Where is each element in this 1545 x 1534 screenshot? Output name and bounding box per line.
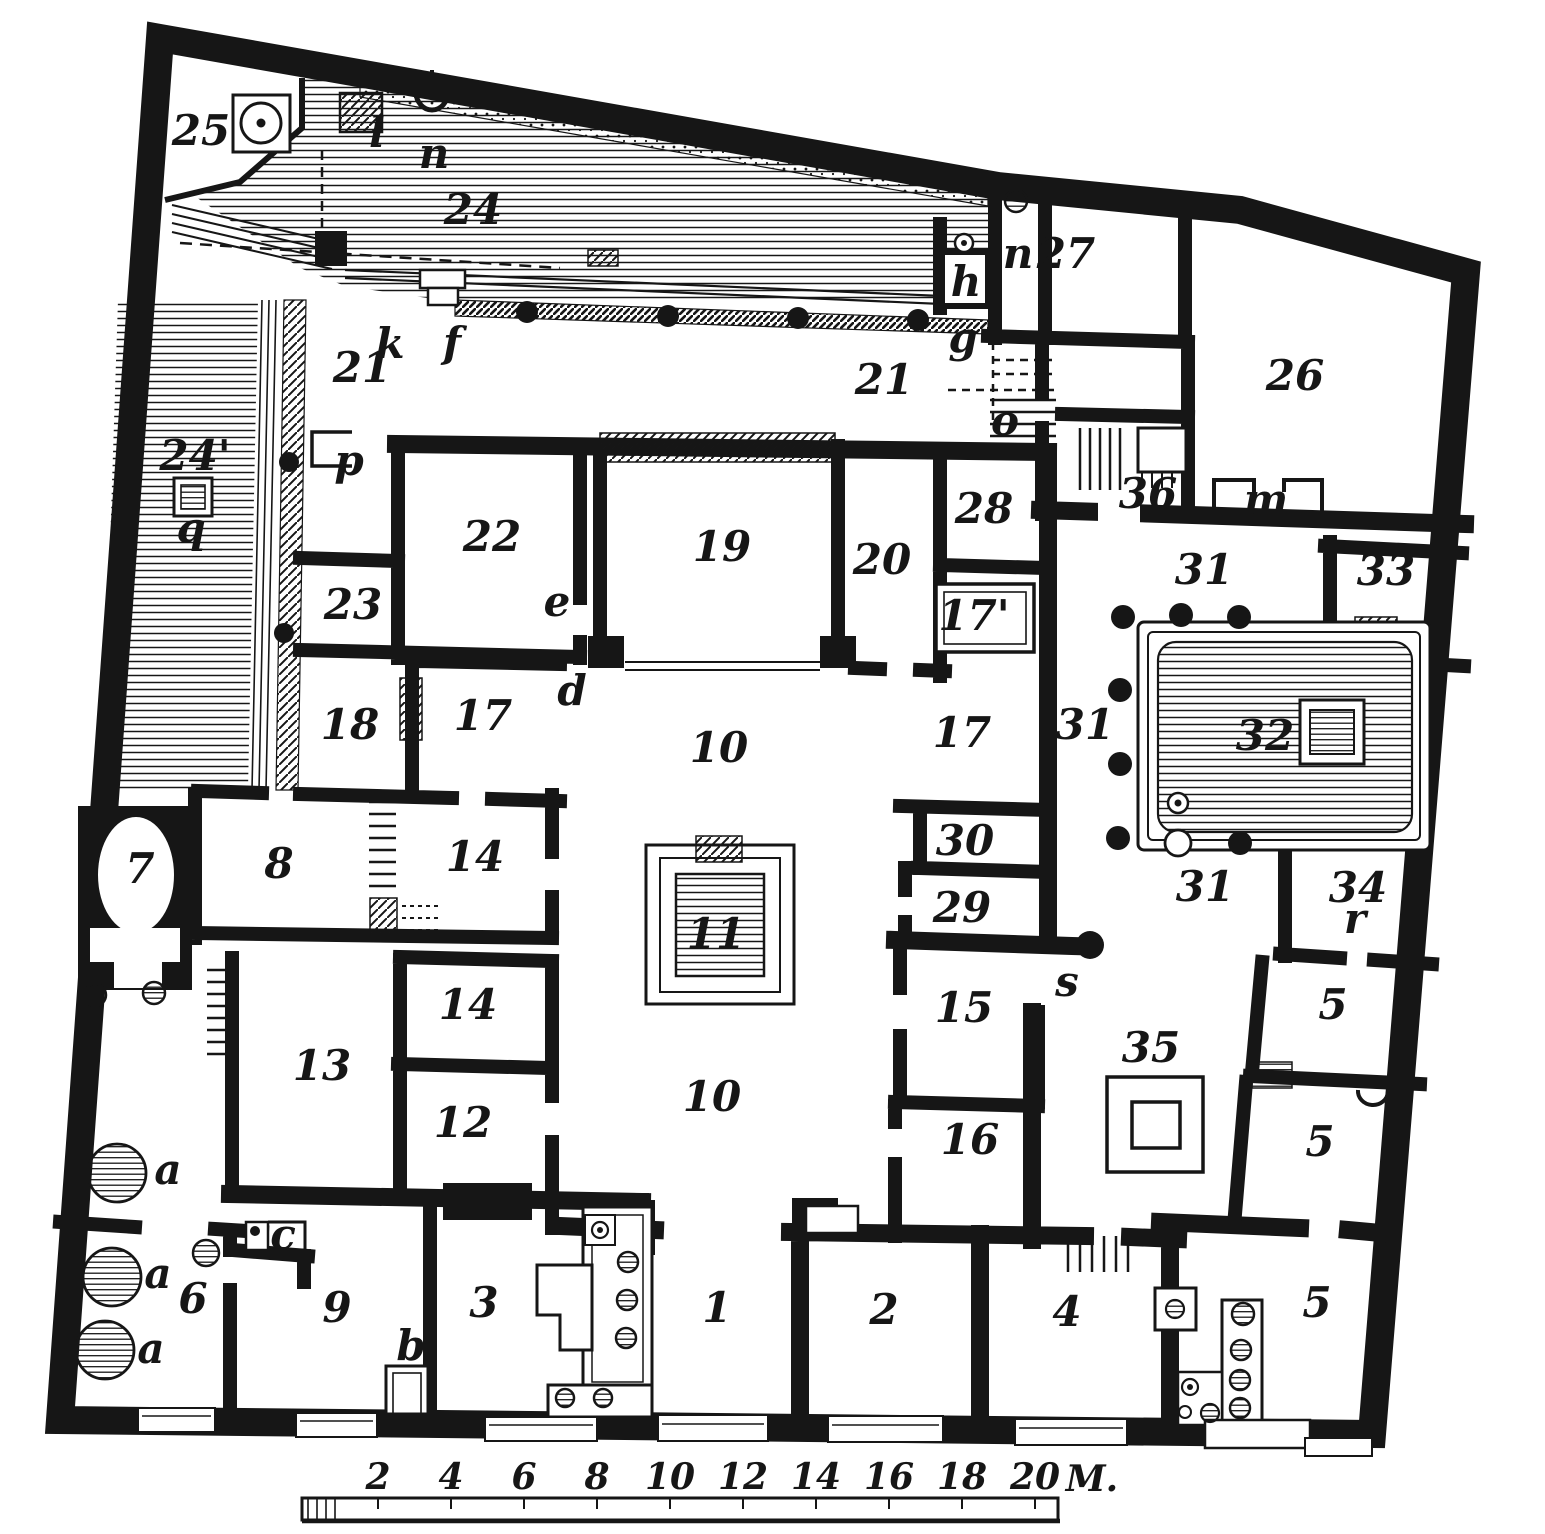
room-label-25: 25 — [171, 106, 230, 155]
room-label-10: 10 — [683, 1072, 741, 1121]
room-label-35: 35 — [1122, 1023, 1180, 1072]
room-label-15: 15 — [935, 983, 993, 1032]
scale-tick-16: 16 — [864, 1456, 914, 1498]
room-label-14: 14 — [439, 980, 497, 1029]
room-label-a: a — [137, 1324, 164, 1373]
room-label-5: 5 — [1302, 1278, 1331, 1327]
room-label-r: r — [1344, 894, 1369, 943]
room-label-l: l — [369, 108, 385, 157]
scale-tick-12: 12 — [718, 1456, 768, 1498]
scale-tick-6: 6 — [511, 1456, 536, 1498]
half-column — [279, 452, 299, 472]
room-label-32: 32 — [1236, 711, 1294, 760]
room-label-6: 6 — [178, 1274, 207, 1323]
room-label-21: 21 — [332, 343, 391, 392]
room-label-e: e — [544, 577, 571, 626]
room-label-31: 31 — [1175, 545, 1233, 594]
mill-feature — [233, 95, 290, 152]
scale-tick-20: 20 — [1009, 1456, 1060, 1498]
room-label-b: b — [396, 1321, 425, 1370]
small-hatch — [588, 250, 618, 266]
room-label-8: 8 — [263, 839, 293, 888]
floor-plan-page: 25ln2424'qkf21p21ghn27o2636m2219202823ed… — [0, 0, 1545, 1534]
room-label-20: 20 — [852, 535, 911, 584]
room-label-13: 13 — [293, 1041, 351, 1090]
room-label-g: g — [948, 313, 977, 362]
room-label-24: 24 — [443, 185, 502, 234]
scale-tick-14: 14 — [791, 1456, 841, 1498]
room-label-14: 14 — [446, 832, 504, 881]
room-label-5: 5 — [1318, 980, 1347, 1029]
room-label-7: 7 — [125, 844, 154, 893]
room-label-17: 17 — [454, 691, 512, 740]
fixture-square-4 — [1155, 1288, 1196, 1330]
room-label-28: 28 — [954, 484, 1013, 533]
room-label-10: 10 — [690, 723, 748, 772]
room-label-27: 27 — [1036, 229, 1095, 278]
scale-tick-8: 8 — [583, 1456, 609, 1498]
room-label-3: 3 — [469, 1278, 498, 1327]
scale-tick-18: 18 — [937, 1456, 987, 1498]
scale-tick-10: 10 — [645, 1456, 695, 1498]
scale-unit-label: M. — [1064, 1458, 1118, 1500]
floor-plan-figure: 25ln2424'qkf21p21ghn27o2636m2219202823ed… — [0, 0, 1545, 1534]
room-label-m: m — [1244, 475, 1288, 524]
tablinum-anta — [588, 636, 624, 668]
room-label-19: 19 — [693, 522, 751, 571]
room-label-12: 12 — [434, 1098, 492, 1147]
feature-f-steps — [420, 270, 465, 305]
room-label-q: q — [176, 503, 205, 552]
wall-jog — [443, 1183, 532, 1220]
room-label-h: h — [951, 257, 982, 306]
room-label-36: 36 — [1119, 469, 1177, 518]
recess-2 — [806, 1206, 858, 1233]
cistern-n — [1005, 190, 1027, 212]
room-label-9: 9 — [322, 1283, 351, 1332]
room-label-17: 17 — [933, 708, 991, 757]
room-label-s: s — [1054, 957, 1079, 1006]
room-label-30: 30 — [936, 816, 994, 865]
room-label-18: 18 — [321, 700, 379, 749]
feature-b — [386, 1366, 428, 1414]
room-label-1: 1 — [702, 1283, 731, 1332]
room-label-4: 4 — [1052, 1287, 1081, 1336]
tablinum-anta — [820, 636, 856, 668]
half-column — [274, 623, 294, 643]
room-label-31: 31 — [1176, 862, 1234, 911]
pier — [315, 231, 347, 266]
room-label-a: a — [144, 1249, 171, 1298]
scale-tick-2: 2 — [364, 1456, 390, 1498]
room-label-2: 2 — [868, 1285, 898, 1334]
room-label-o: o — [991, 396, 1019, 445]
room-label-p: p — [334, 436, 363, 485]
room-label-11: 11 — [687, 909, 745, 958]
oven-7 — [78, 806, 192, 1006]
scale-tick-4: 4 — [438, 1456, 463, 1498]
room-label-d: d — [557, 666, 586, 715]
room-label-21: 21 — [854, 355, 913, 404]
room-label-17': 17' — [938, 591, 1009, 640]
room-label-a: a — [154, 1145, 181, 1194]
room-label-31: 31 — [1056, 700, 1114, 749]
room-label-22: 22 — [462, 512, 521, 561]
room-label-26: 26 — [1265, 351, 1324, 400]
room-label-c: c — [270, 1210, 296, 1259]
room-label-n: n — [419, 129, 450, 178]
room-label-33: 33 — [1357, 546, 1415, 595]
room-label-n: n — [1003, 229, 1034, 278]
room-label-29: 29 — [932, 883, 991, 932]
room-label-24': 24' — [158, 431, 230, 480]
feature-35 — [1107, 1077, 1203, 1172]
room-label-5: 5 — [1305, 1117, 1334, 1166]
room-label-16: 16 — [941, 1115, 999, 1164]
room-label-23: 23 — [323, 580, 382, 629]
